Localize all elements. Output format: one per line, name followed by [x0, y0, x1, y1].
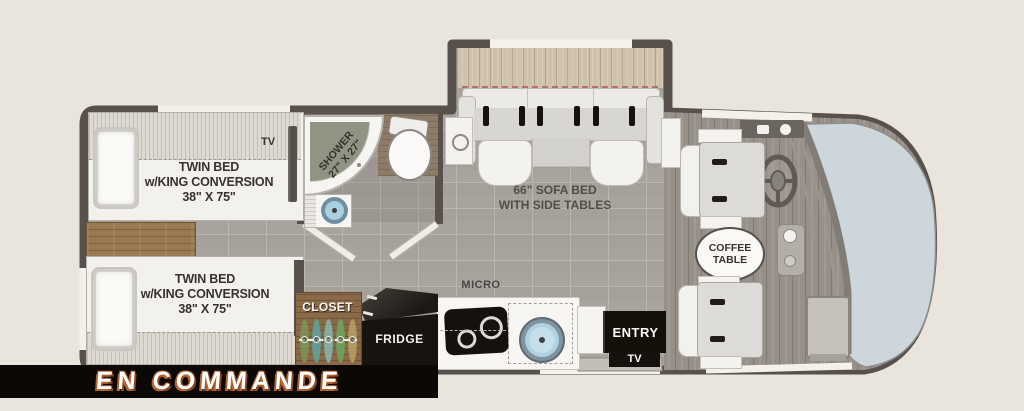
seat-cushion [697, 282, 763, 358]
sofa-label: 66" SOFA BED WITH SIDE TABLES [465, 183, 645, 213]
sofa-seat [474, 108, 646, 141]
rv-floorplan: TWIN BED w/KING CONVERSION 38" X 75" TV … [0, 0, 1024, 411]
entry-tv: TV [609, 351, 660, 367]
sofa-center-cushion [532, 138, 590, 167]
seat-cushion [699, 142, 765, 218]
seat-table [700, 356, 742, 369]
seatbelt-icon [593, 106, 599, 126]
status-banner: EN COMMANDE [0, 365, 438, 398]
cooktop [444, 306, 509, 355]
closet-hangers-icon [299, 319, 357, 363]
passenger-seat [678, 280, 762, 362]
coffee-table: COFFEE TABLE [695, 227, 765, 281]
armrest [710, 299, 725, 305]
dash-panel-edge [810, 354, 846, 361]
steering-wheel-icon [761, 157, 795, 205]
fridge: FRIDGE [358, 288, 438, 372]
ottoman [478, 140, 532, 186]
armrest [710, 336, 725, 342]
center-console [777, 224, 805, 276]
twin-bed-top: TWIN BED w/KING CONVERSION 38" X 75" [88, 112, 304, 221]
ottoman [590, 140, 644, 186]
twin-bed-bottom: TWIN BED w/KING CONVERSION 38" X 75" [86, 256, 304, 365]
sofa-side-table [445, 117, 473, 165]
hanger-ring [337, 336, 344, 343]
entry-tv-label: TV [627, 353, 641, 365]
closet: CLOSET [295, 292, 362, 374]
dash-panel [806, 296, 850, 358]
hanger-ring [325, 336, 332, 343]
counter-dashed-line [440, 330, 506, 331]
micro-label: MICRO [452, 279, 510, 291]
fridge-label: FRIDGE [361, 332, 438, 346]
hanger-ring [301, 336, 308, 343]
bathroom-sink [304, 194, 352, 228]
cushion-seam [527, 89, 528, 109]
bedroom-tv-label: TV [252, 136, 284, 148]
sofa-side-table [661, 118, 681, 168]
entry-label: ENTRY [612, 325, 658, 340]
sink-drain [332, 208, 337, 213]
towel [305, 195, 316, 227]
status-banner-label: EN COMMANDE [95, 367, 344, 396]
seatbelt-icon [537, 106, 543, 126]
cup-holder-icon [784, 255, 796, 267]
hanger-ring [313, 336, 320, 343]
armrest [712, 196, 727, 202]
toilet-bowl [387, 129, 432, 181]
overhead-console [740, 120, 804, 138]
seatbelt-icon [483, 106, 489, 126]
sink-drain [539, 337, 545, 343]
armrest [712, 159, 727, 165]
driver-seat [680, 140, 764, 220]
seatbelt-icon [574, 106, 580, 126]
console-screen [757, 125, 769, 134]
closet-label: CLOSET [297, 300, 358, 314]
bed-bottom-label: TWIN BED w/KING CONVERSION 38" X 75" [115, 272, 295, 317]
cup-holder-icon [783, 229, 797, 243]
cup-holder-icon [452, 134, 469, 151]
end-cabinet [577, 306, 606, 354]
console-vent [780, 124, 791, 135]
kitchen-sink [519, 317, 565, 363]
seatbelt-icon [519, 106, 525, 126]
burner [457, 329, 477, 349]
slideout-wood-floor [457, 48, 663, 88]
bed-top-label: TWIN BED w/KING CONVERSION 38" X 75" [121, 160, 297, 205]
burner [479, 316, 503, 340]
entry-cabinet: ENTRY [603, 311, 666, 353]
seatbelt-icon [629, 106, 635, 126]
hanger-ring [349, 336, 356, 343]
